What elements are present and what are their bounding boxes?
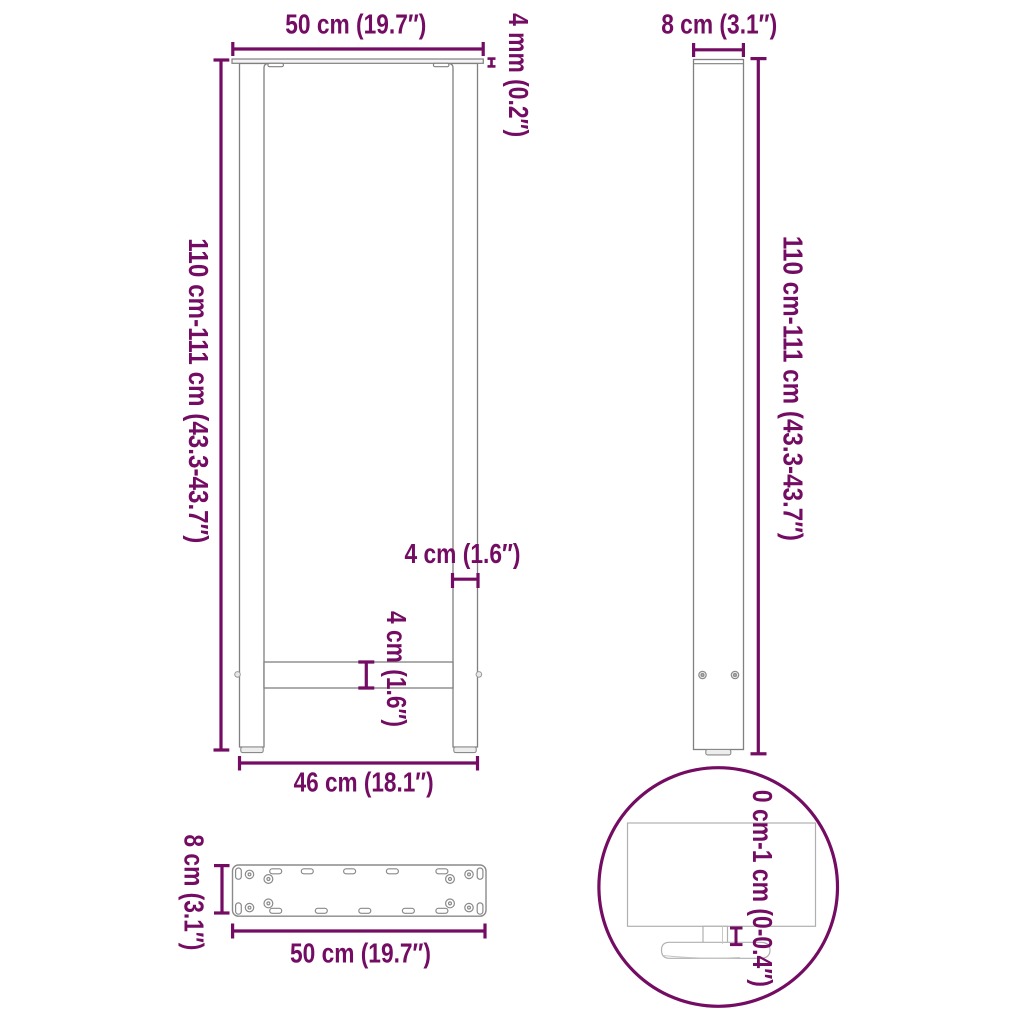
svg-text:4 cm (1.6″): 4 cm (1.6″) (405, 538, 521, 569)
svg-text:8 cm (3.1″): 8 cm (3.1″) (179, 834, 210, 950)
svg-text:110 cm-111 cm (43.3-43.7″): 110 cm-111 cm (43.3-43.7″) (183, 238, 214, 543)
svg-text:110 cm-111 cm (43.3-43.7″): 110 cm-111 cm (43.3-43.7″) (778, 236, 809, 541)
svg-text:8 cm (3.1″): 8 cm (3.1″) (661, 9, 777, 40)
svg-text:4 mm (0.2″): 4 mm (0.2″) (503, 13, 534, 137)
svg-text:46 cm (18.1″): 46 cm (18.1″) (294, 766, 434, 797)
svg-text:50 cm (19.7″): 50 cm (19.7″) (285, 8, 426, 39)
svg-text:50 cm (19.7″): 50 cm (19.7″) (290, 937, 431, 968)
svg-text:4 cm (1.6″): 4 cm (1.6″) (381, 611, 412, 727)
svg-text:0 cm-1 cm (0-0.4″): 0 cm-1 cm (0-0.4″) (747, 790, 778, 987)
